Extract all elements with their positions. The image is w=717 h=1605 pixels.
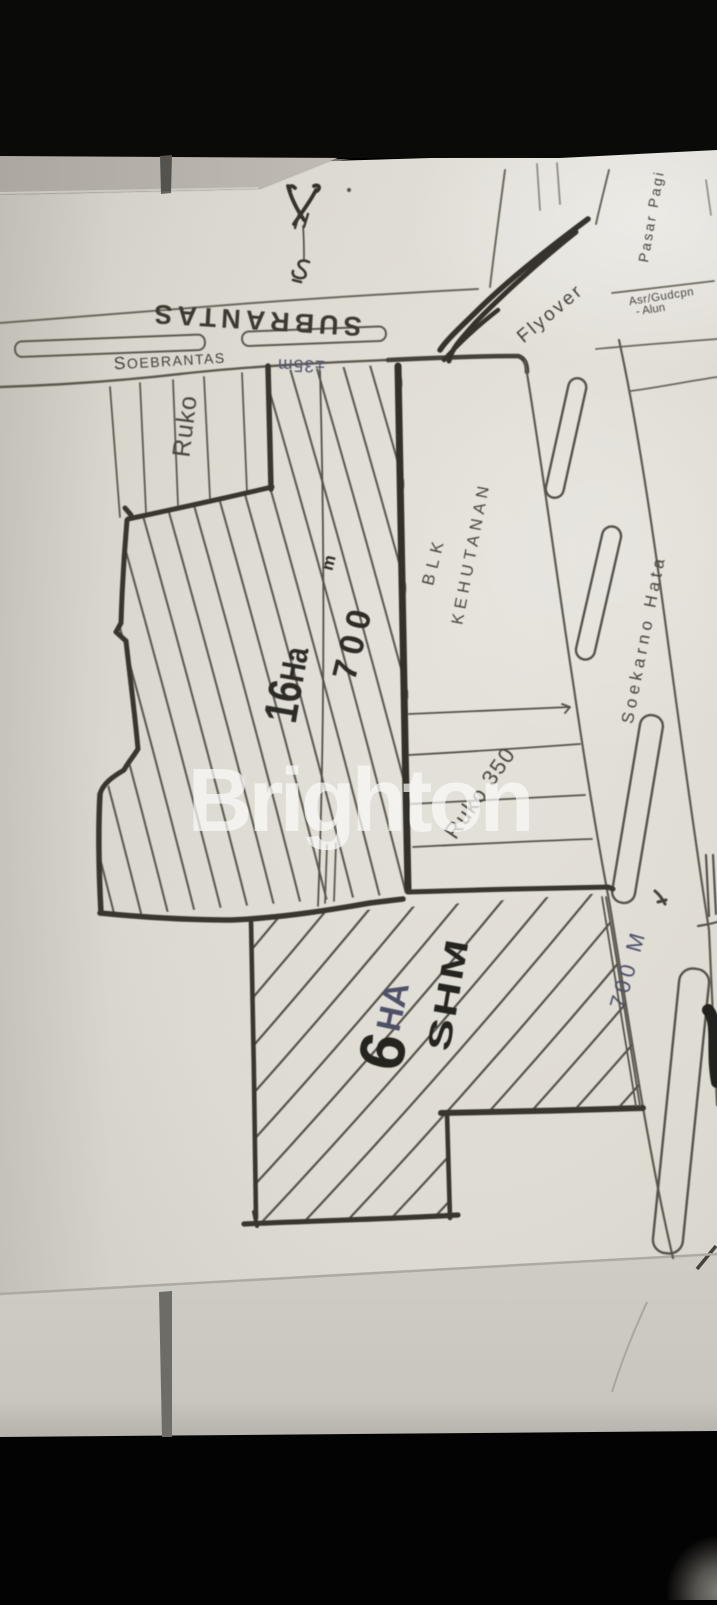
svg-text:±35m: ±35m [277, 355, 325, 377]
svg-text:Brighton: Brighton [188, 751, 531, 851]
